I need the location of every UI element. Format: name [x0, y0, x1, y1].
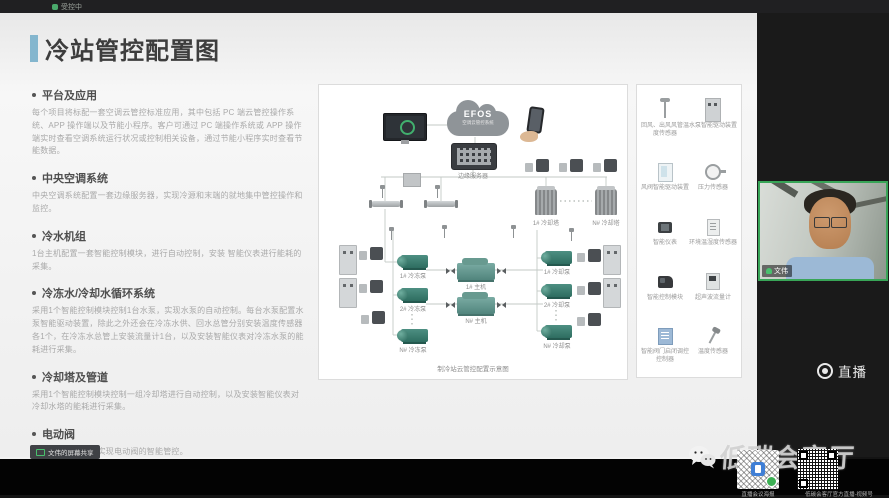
- monitor-icon: [36, 449, 45, 456]
- electrical-cabinet-icon: [603, 245, 621, 275]
- section-chiller: 冷水机组 1台主机配置一套智能控制模块，进行自动控制，安装 智能仪表进行能耗的采…: [32, 228, 304, 274]
- cloud-logo: EFOS: [447, 109, 509, 119]
- title-accent-bar: [30, 35, 38, 62]
- sensor-antenna-icon: [513, 229, 514, 238]
- legend-item: 温度传感器: [689, 323, 737, 365]
- slide-text-column: 平台及应用 每个项目将标配一套空调云管控标准应用，其中包括 PC 端云管控操作系…: [32, 87, 304, 471]
- pipe-sensor-icon: [437, 189, 438, 198]
- screen-share-slide: 冷站管控配置图 平台及应用 每个项目将标配一套空调云管控标准应用，其中包括 PC…: [0, 13, 757, 459]
- section-water-loop: 冷冻水/冷却水循环系统 采用1个智能控制模块控制1台水泵，实现水泵的自动控制。每…: [32, 285, 304, 356]
- cooling-tower-icon: [535, 189, 557, 215]
- legend-label: 智能仪表: [641, 240, 689, 248]
- system-diagram-panel: EFOS 空调云管控系统 边缘服务器 1# 冷却塔 N# 冷却塔: [318, 84, 628, 380]
- section-body: 采用1个智能控制模块控制1台水泵，实现水泵的自动控制。每台水泵配置水泵智能驱动装…: [32, 305, 304, 356]
- wechat-icon: [688, 445, 716, 469]
- ahu-pair-icon: [593, 159, 617, 172]
- diagram-caption: 制冷站云管控配置示意图: [319, 363, 627, 373]
- legend-item: 回风、出风风管温度传感器: [641, 97, 689, 139]
- fan-unit-pair-icon: [577, 249, 601, 262]
- legend-label: 风阀智能驱动装置: [641, 185, 689, 193]
- legend-panel: 回风、出风风管温度传感器 水泵智能驱动装置 风阀智能驱动装置 压力传感器 智能仪…: [636, 84, 742, 378]
- env-temp-humidity-sensor-icon: [707, 219, 720, 236]
- ceiling-beam: [758, 181, 798, 198]
- sensor-antenna-icon: [444, 229, 445, 238]
- smart-meter-icon: [658, 222, 672, 233]
- damper-drive-icon: [658, 163, 673, 182]
- legend-item: 超声波流量计: [689, 269, 737, 303]
- slide-title: 冷站管控配置图: [45, 31, 220, 66]
- duct-temp-sensor-icon: [664, 102, 666, 118]
- chiller-label: 1# 主机: [453, 282, 499, 291]
- section-heading: 平台及应用: [32, 87, 304, 103]
- qr-caption-left: 直播会议海报: [727, 490, 789, 498]
- legend-item: 智能仪表: [641, 214, 689, 248]
- app-logo-icon: [751, 462, 765, 476]
- cooling-pump-icon: [545, 325, 572, 338]
- chilled-pump-label: 2# 冷冻泵: [387, 304, 439, 313]
- pump-drive-cabinet-icon: [705, 98, 721, 122]
- share-tab-label: 文伟的屏幕共享: [48, 447, 94, 457]
- section-body: 采用1个智能控制模块控制一组冷却塔进行自动控制，以及安装智能仪表对冷却水塔的能耗…: [32, 389, 304, 415]
- sensor-antenna-icon: [391, 231, 392, 240]
- legend-label: 水泵智能驱动装置: [689, 123, 737, 131]
- valve-controller-icon: [658, 328, 673, 345]
- section-heading: 冷却塔及管道: [32, 369, 304, 385]
- chilled-pump-icon: [401, 288, 428, 301]
- screen-share-tab[interactable]: 文伟的屏幕共享: [30, 445, 100, 459]
- top-bar: 受控中: [0, 0, 889, 13]
- green-dot-icon: [766, 476, 777, 487]
- ahu-pair-icon: [525, 159, 549, 172]
- person-icon: [766, 268, 772, 274]
- poster-qr-code: [737, 450, 779, 489]
- participant-name-tag: 文伟: [762, 265, 792, 277]
- control-module-icon: [658, 276, 673, 288]
- cooling-tower-label: 1# 冷却塔: [523, 218, 569, 227]
- electrical-cabinet-icon: [339, 278, 357, 308]
- ahu-pair-icon: [559, 159, 583, 172]
- wechat-channel-qr-code: [797, 449, 838, 490]
- chiller-icon: [457, 263, 495, 280]
- remote-control-status: 受控中: [52, 2, 82, 12]
- legend-item: 智能阀门启闭调控控制器: [641, 323, 689, 365]
- valve-icon: [446, 268, 455, 274]
- temp-probe-icon: [709, 329, 718, 343]
- participant-shirt: [786, 257, 874, 281]
- legend-item: 水泵智能驱动装置: [689, 97, 737, 139]
- section-central-ac: 中央空调系统 中央空调系统配置一套边缘服务器，实现冷源和末端的就地集中管控操作和…: [32, 170, 304, 216]
- chilled-pump-label: N# 冷冻泵: [387, 345, 439, 354]
- chilled-pump-label: 1# 冷冻泵: [387, 271, 439, 280]
- section-body: 中央空调系统配置一套边缘服务器，实现冷源和末端的就地集中管控操作和监控。: [32, 190, 304, 216]
- fan-unit-pair-icon: [359, 280, 383, 293]
- chiller-icon: [457, 297, 495, 314]
- legend-item: 压力传感器: [689, 159, 737, 193]
- control-screen-icon: [383, 113, 427, 141]
- fan-unit-pair-icon: [359, 247, 383, 260]
- edge-server-label: 边缘服务器: [445, 171, 501, 180]
- ultrasonic-flowmeter-icon: [706, 273, 720, 290]
- legend-label: 超声波流量计: [689, 295, 737, 303]
- status-label: 受控中: [61, 2, 82, 12]
- sensor-antenna-icon: [571, 232, 572, 241]
- valve-icon: [497, 268, 506, 274]
- fan-unit-pair-icon: [577, 313, 601, 326]
- valve-control-box-icon: [403, 173, 421, 187]
- cloud-subtitle: 空调云管控系统: [447, 120, 509, 126]
- cooling-pump-label: 1# 冷却泵: [531, 267, 583, 276]
- qr-caption-right: 低碳会客厅官方直播-视频号: [789, 490, 889, 498]
- chilled-pump-icon: [401, 329, 428, 342]
- cooling-pump-icon: [545, 251, 572, 264]
- section-cooling-tower: 冷却塔及管道 采用1个智能控制模块控制一组冷却塔进行自动控制，以及安装智能仪表对…: [32, 369, 304, 415]
- electrical-cabinet-icon: [603, 278, 621, 308]
- legend-label: 回风、出风风管温度传感器: [641, 123, 689, 139]
- chiller-label: N# 主机: [453, 316, 499, 325]
- meeting-app-window: { "window": { "top_status": "受控中" }, "sl…: [0, 0, 889, 495]
- cooling-pump-label: 2# 冷却泵: [531, 300, 583, 309]
- pipe-sensor-icon: [382, 189, 383, 198]
- legend-label: 智能控制模块: [641, 295, 689, 303]
- chilled-pump-icon: [401, 255, 428, 268]
- fan-unit-pair-icon: [361, 311, 385, 324]
- cloud-platform-icon: EFOS 空调云管控系统: [447, 111, 509, 136]
- pressure-sensor-icon: [705, 164, 721, 180]
- legend-label: 智能阀门启闭调控控制器: [641, 349, 689, 365]
- section-heading: 冷水机组: [32, 228, 304, 244]
- live-badge: 直播: [817, 361, 867, 381]
- legend-label: 环境温湿度传感器: [689, 240, 737, 248]
- section-body: 每个项目将标配一套空调云管控标准应用，其中包括 PC 端云管控操作系统、APP …: [32, 107, 304, 158]
- legend-label: 温度传感器: [689, 349, 737, 357]
- participant-name: 文伟: [774, 266, 788, 276]
- legend-item: 智能控制模块: [641, 269, 689, 303]
- legend-label: 压力传感器: [689, 185, 737, 193]
- legend-item: 风阀智能驱动装置: [641, 159, 689, 193]
- section-platform: 平台及应用 每个项目将标配一套空调云管控标准应用，其中包括 PC 端云管控操作系…: [32, 87, 304, 158]
- section-body: 1台主机配置一套智能控制模块，进行自动控制，安装 智能仪表进行能耗的采集。: [32, 248, 304, 274]
- valve-icon: [446, 302, 455, 308]
- water-pipe-icon: [371, 201, 401, 207]
- participant-video-tile[interactable]: 文伟: [758, 181, 888, 281]
- status-dot-icon: [52, 4, 58, 10]
- water-pipe-icon: [426, 201, 456, 207]
- section-heading: 电动阀: [32, 426, 304, 442]
- electrical-cabinet-icon: [339, 245, 357, 275]
- cooling-pump-label: N# 冷却泵: [531, 341, 583, 350]
- legend-item: 环境温湿度传感器: [689, 214, 737, 248]
- cooling-tower-icon: [595, 189, 617, 215]
- live-label: 直播: [838, 361, 867, 381]
- section-heading: 中央空调系统: [32, 170, 304, 186]
- glasses-icon: [814, 217, 847, 227]
- live-dot-icon: [817, 363, 833, 379]
- hand-icon: [520, 131, 538, 142]
- cooling-tower-label: N# 冷却塔: [583, 218, 629, 227]
- valve-icon: [497, 302, 506, 308]
- section-heading: 冷冻水/冷却水循环系统: [32, 285, 304, 301]
- fan-unit-pair-icon: [577, 282, 601, 295]
- cooling-pump-icon: [545, 284, 572, 297]
- edge-server-icon: [451, 143, 497, 170]
